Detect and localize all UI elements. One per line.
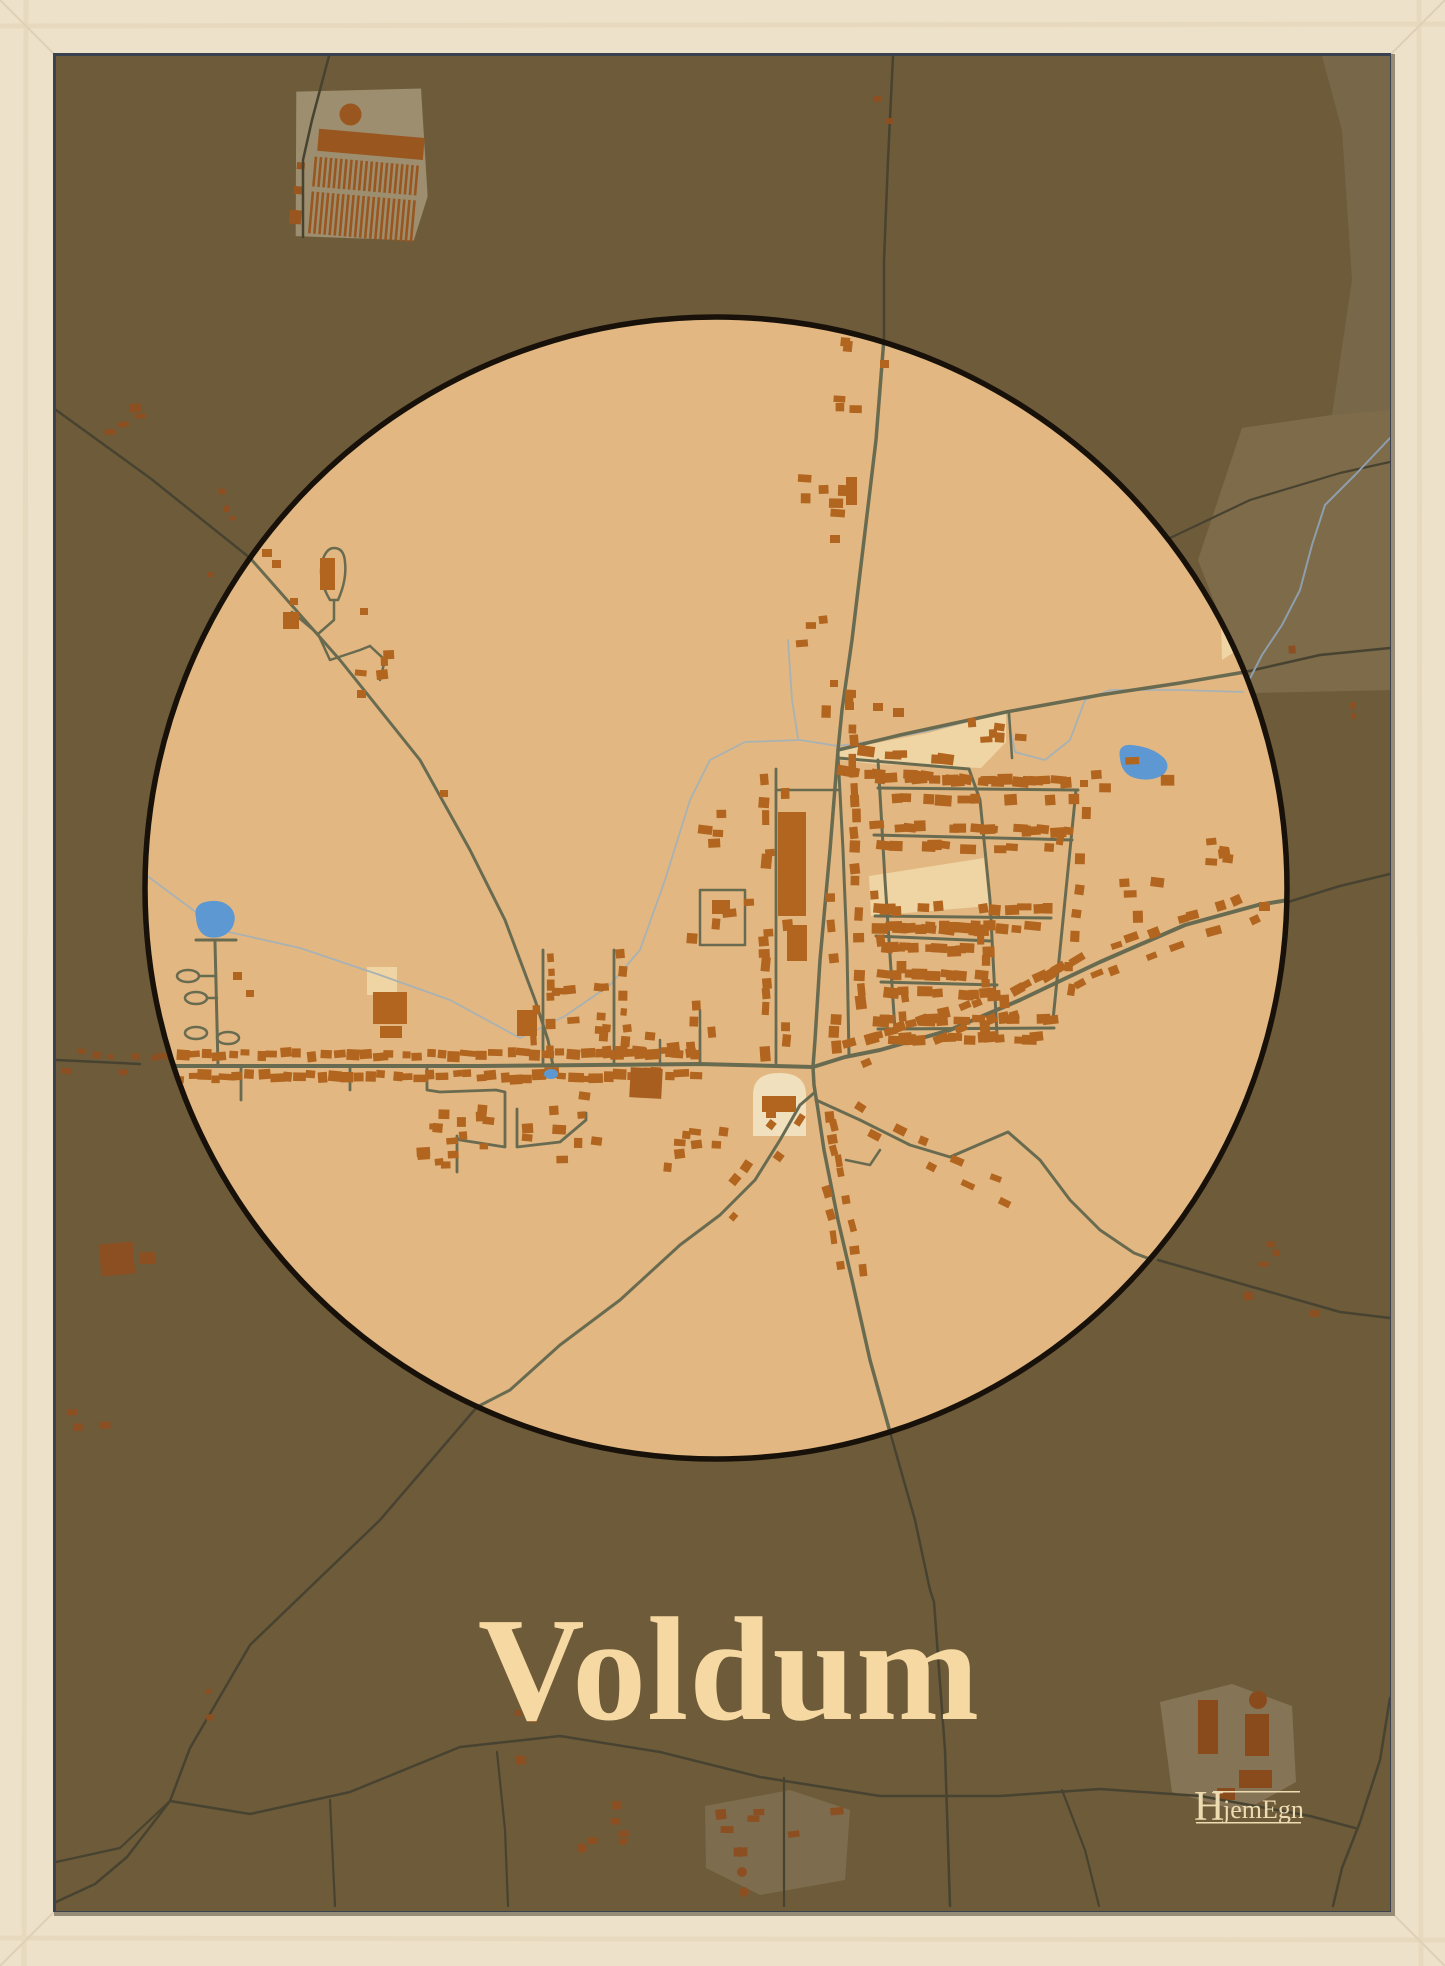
svg-text:jemEgn: jemEgn bbox=[1222, 1795, 1304, 1824]
svg-text:Voldum: Voldum bbox=[478, 1588, 980, 1752]
